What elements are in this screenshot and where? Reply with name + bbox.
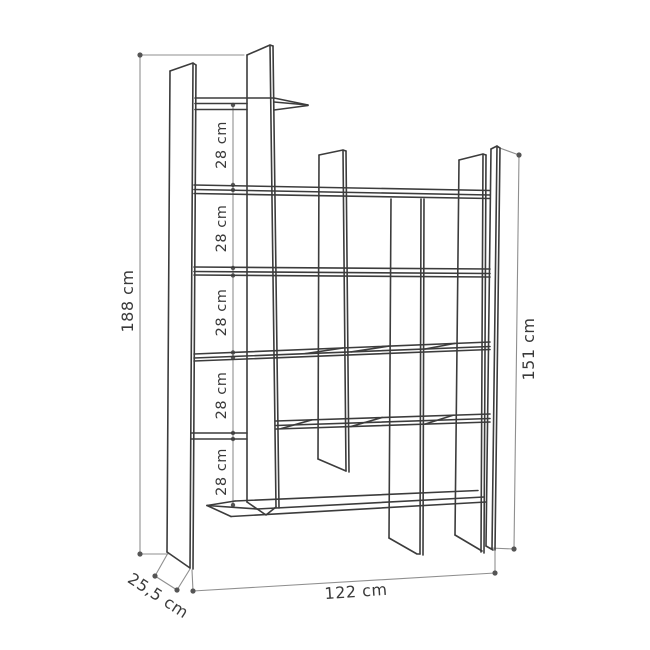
- shelf-level-4-long: [276, 414, 490, 429]
- total-height-label: 188 cm: [118, 269, 137, 332]
- technical-drawing-svg: 188 cm 151 cm 122 cm 25,5 cm 28 cm 28 cm…: [0, 0, 650, 650]
- shelf-spacing-label-5: 28 cm: [214, 448, 230, 496]
- bookcase-dimension-drawing: 188 cm 151 cm 122 cm 25,5 cm 28 cm 28 cm…: [0, 0, 650, 650]
- left-side-panel: [167, 63, 196, 569]
- center-upright-panel: [247, 45, 279, 515]
- shelf-spacing-label-4: 28 cm: [214, 372, 230, 420]
- shelf-spacing-label-2: 28 cm: [214, 205, 230, 253]
- shelf-spacing-label-1: 28 cm: [214, 121, 230, 169]
- shelf-spacing-label-3: 28 cm: [214, 289, 230, 337]
- right-side-panel: [486, 146, 500, 550]
- shelf-level-4-left: [191, 433, 247, 439]
- shelf-level-2: [194, 267, 490, 277]
- shelf-level-3: [194, 342, 490, 361]
- shelf-level-1: [194, 185, 490, 199]
- right-inner-divider-panel: [455, 154, 486, 553]
- top-shelf: [195, 98, 308, 110]
- shelf-spacing-dimension-line: [231, 103, 235, 507]
- right-height-label: 151 cm: [519, 317, 538, 380]
- depth-label: 25,5 cm: [124, 569, 192, 622]
- width-label: 122 cm: [324, 580, 388, 603]
